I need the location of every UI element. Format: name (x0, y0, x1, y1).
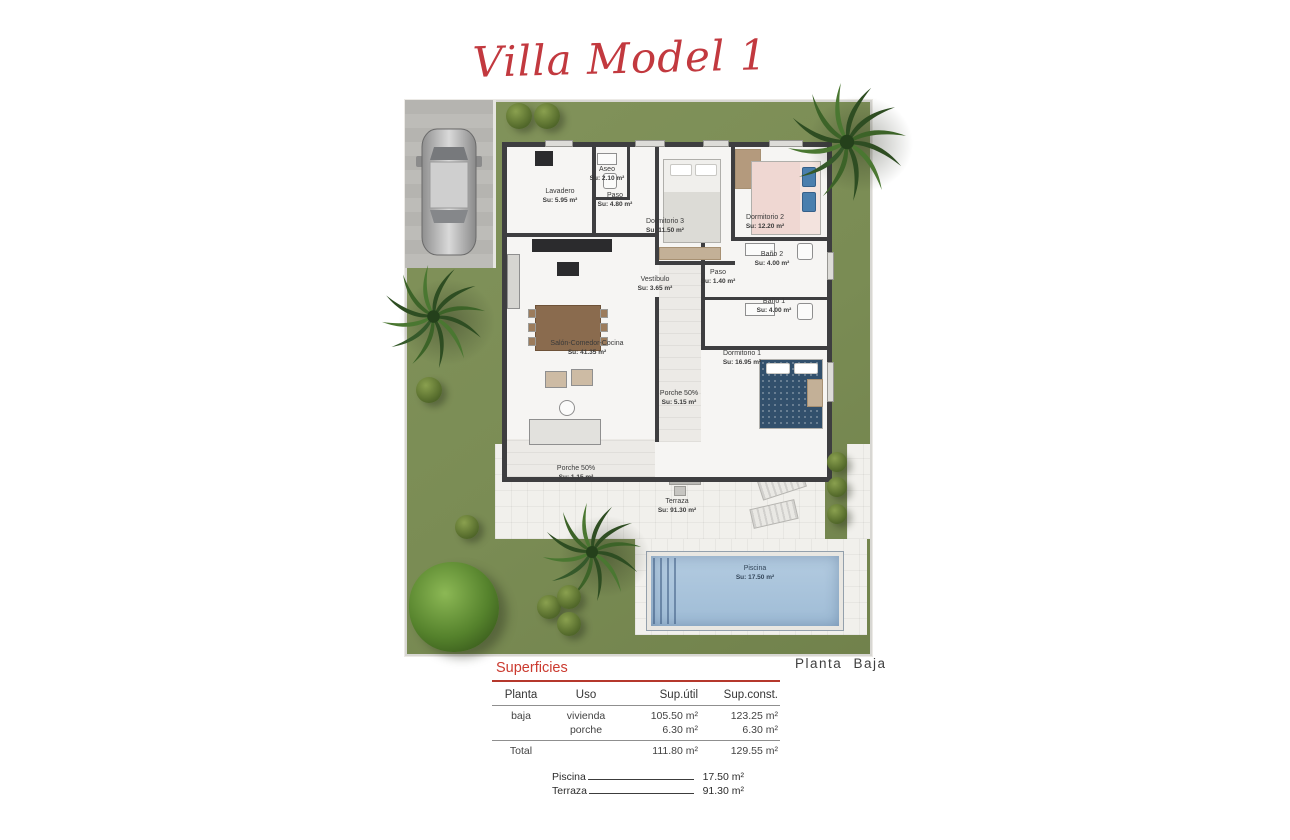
extra-terraza: Terraza 91.30 m² (552, 785, 744, 797)
surface-table-header: Planta Uso Sup.útil Sup.const. (492, 689, 780, 701)
room-label-bano-2: Baño 2Su: 4.00 m² (737, 251, 807, 268)
table-row: baja vivienda 105.50 m² 123.25 m² (492, 710, 780, 722)
palm-tree-icon (381, 264, 486, 369)
site-plan: LavaderoSu: 5.95 m² AseoSu: 2.10 m² Paso… (405, 100, 872, 656)
room-label-bano-1: Baño 1Su: 4.00 m² (739, 298, 809, 315)
table-total-row: Total 111.80 m² 129.55 m² (492, 745, 780, 757)
window (827, 252, 834, 280)
room-label-salon: Salón-Comedor-CocinaSu: 41.35 m² (537, 340, 637, 357)
room-label-aseo: AseoSu: 2.10 m² (582, 166, 632, 183)
bush-icon (534, 103, 560, 129)
header-uso: Uso (550, 689, 622, 701)
wardrobe (659, 247, 721, 260)
wall (731, 237, 827, 241)
room-label-dormitorio-2: Dormitorio 2Su: 12.20 m² (725, 214, 805, 231)
palm-tree-icon (542, 502, 642, 602)
bush-icon (827, 452, 847, 472)
table-row: porche 6.30 m² 6.30 m² (492, 724, 780, 736)
floor-plan-page: Villa Model 1 (0, 0, 1290, 840)
pool (647, 552, 843, 630)
coffee-table (559, 400, 575, 416)
driveway (405, 100, 496, 268)
room-label-paso-2: PasoSu: 1.40 m² (688, 269, 748, 286)
room-label-dormitorio-3: Dormitorio 3Su: 11.50 m² (625, 218, 705, 235)
sofa (529, 419, 601, 445)
armchair (571, 369, 593, 386)
window (703, 140, 729, 147)
tree-icon (409, 562, 499, 652)
page-title: Villa Model 1 (454, 30, 785, 88)
kitchen-counter (532, 239, 612, 252)
surface-table-title: Superficies (492, 660, 780, 682)
room-label-dormitorio-1: Dormitorio 1Su: 16.95 m² (702, 350, 782, 367)
bush-icon (827, 477, 847, 497)
room-label-piscina: PiscinaSu: 17.50 m² (725, 565, 785, 582)
bush-icon (557, 585, 581, 609)
room-label-vestibulo: VestíbuloSu: 3.65 m² (620, 276, 690, 293)
header-planta: Planta (492, 689, 550, 701)
leader-line (588, 779, 694, 780)
room-label-paso: PasoSu: 4.80 m² (590, 192, 640, 209)
room-label-terraza: TerrazaSu: 91.30 m² (647, 498, 707, 515)
extra-piscina: Piscina 17.50 m² (552, 771, 744, 783)
bush-icon (557, 612, 581, 636)
washer-icon (535, 151, 553, 166)
kitchen-island (557, 262, 579, 276)
bush-icon (416, 377, 442, 403)
bush-icon (455, 515, 479, 539)
divider (492, 740, 780, 741)
car-icon (416, 126, 482, 258)
plan-label: Planta Baja (795, 656, 887, 671)
sink (597, 153, 617, 165)
armchair (545, 371, 567, 388)
pool-lane-lines (653, 558, 681, 624)
window (545, 140, 573, 147)
bush-icon (827, 504, 847, 524)
window (827, 362, 834, 402)
window (635, 140, 665, 147)
bush-icon (506, 103, 532, 129)
nightstand (807, 379, 823, 407)
room-label-porche-a: Porche 50%Su: 5.15 m² (649, 390, 709, 407)
kitchen-side-counter (507, 254, 520, 309)
surface-table: Superficies Planta Uso Sup.útil Sup.cons… (492, 660, 780, 759)
palm-tree-icon (787, 82, 907, 202)
room-label-lavadero: LavaderoSu: 5.95 m² (520, 188, 600, 205)
extras-list: Piscina 17.50 m² Terraza 91.30 m² (552, 771, 744, 799)
terrace-side-path (847, 444, 870, 539)
leader-line (589, 793, 694, 794)
header-sup-util: Sup.útil (622, 689, 704, 701)
divider (492, 705, 780, 706)
header-sup-const: Sup.const. (704, 689, 780, 701)
room-label-porche-b: Porche 50%Su: 1.15 m² (546, 465, 606, 482)
